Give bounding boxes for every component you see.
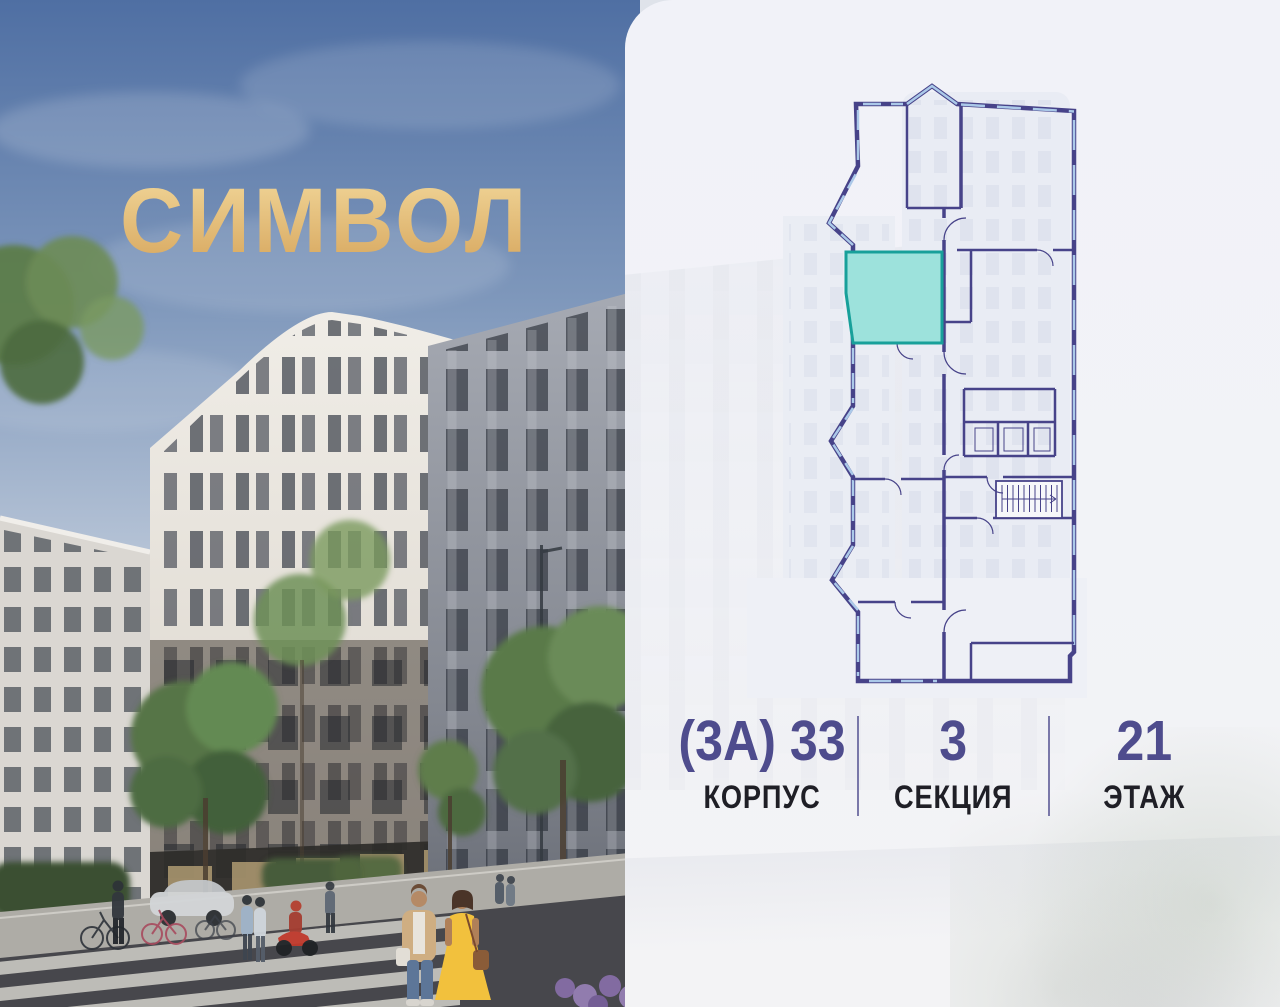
building-photo: СИМВОЛ [0,0,640,1007]
section-value: 3 [870,712,1036,772]
floor-plan [747,78,1087,698]
building-label: КОРПУС [681,780,843,815]
floor-value: 21 [1061,712,1227,772]
stat-floor: 21 ЭТАЖ [1050,712,1238,815]
stat-section: 3 СЕКЦИЯ [859,712,1047,815]
brand-logo: СИМВОЛ [120,170,530,272]
floor-label: ЭТАЖ [1064,780,1224,815]
building-value: (3А) 33 [678,712,845,772]
page: СИМВОЛ [0,0,1280,1007]
divider [857,716,859,816]
unit-details: (3А) 33 КОРПУС 3 СЕКЦИЯ 21 ЭТАЖ [625,712,1280,816]
ghost-tower [747,92,1087,698]
info-panel: (3А) 33 КОРПУС 3 СЕКЦИЯ 21 ЭТАЖ [625,0,1280,1007]
staircase [996,481,1062,518]
divider [1048,716,1050,816]
section-label: СЕКЦИЯ [873,780,1033,815]
stat-building: (3А) 33 КОРПУС [667,712,857,815]
selected-apartment[interactable] [846,252,942,343]
